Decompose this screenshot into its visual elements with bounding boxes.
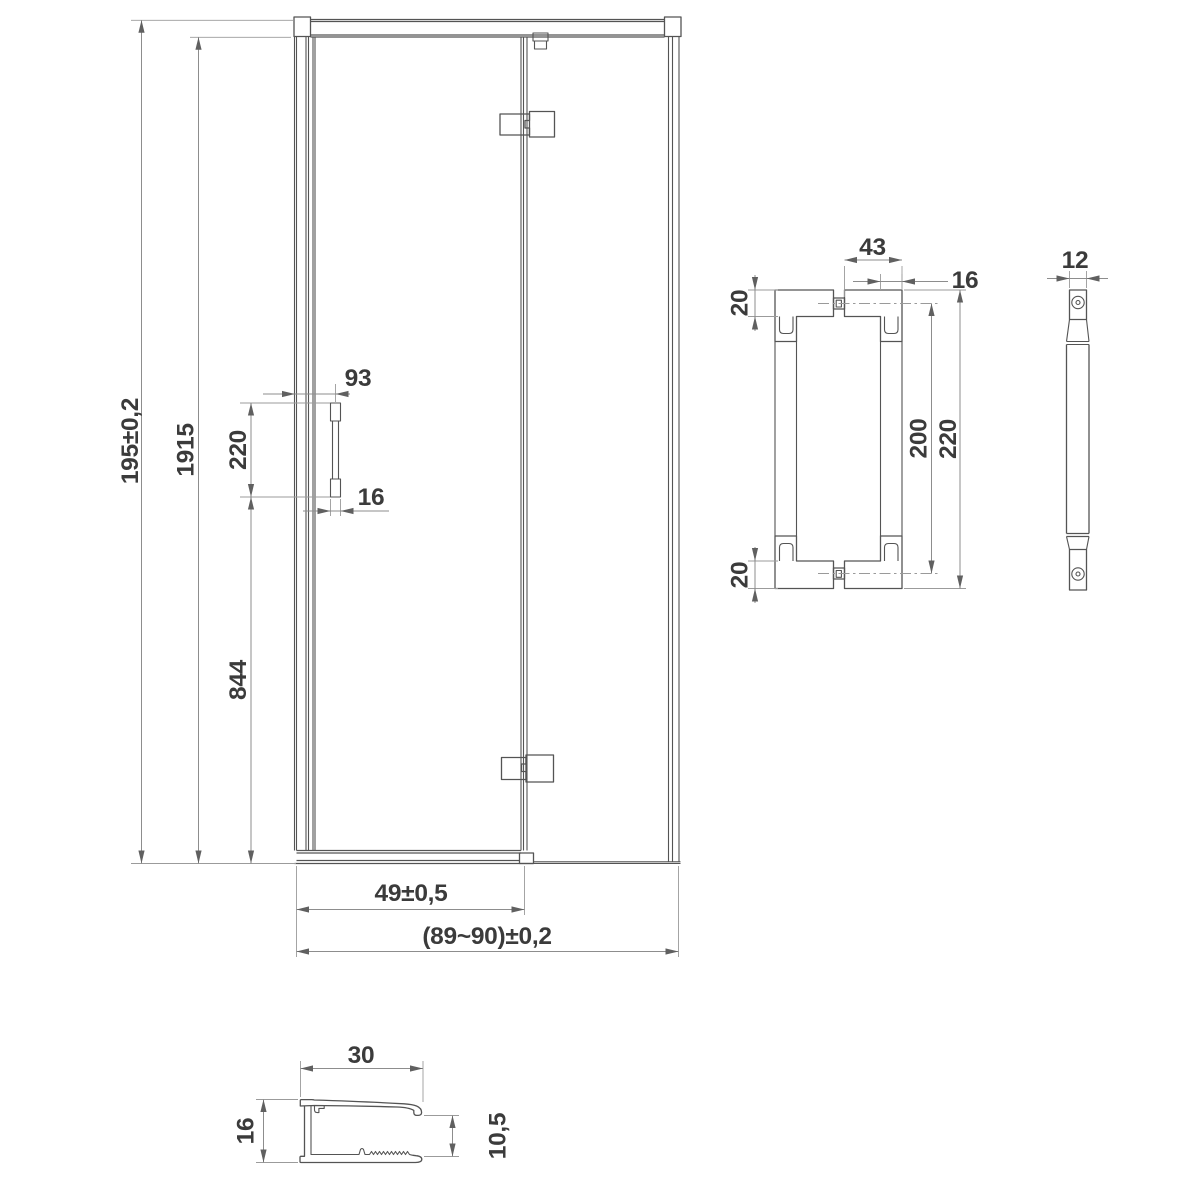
handle-slot-bottom-left: [780, 544, 794, 562]
dim-label-total-length: 220: [935, 419, 962, 459]
dim-label-holes-distance: 200: [906, 419, 933, 459]
dim-label-profile-channel: 10,5: [485, 1113, 512, 1159]
dim-profile-height: 16: [233, 1100, 299, 1163]
technical-drawing-page: 195±0,2 1915 220 844 93: [0, 0, 1200, 1200]
dim-profile-width: 30: [301, 1042, 424, 1102]
dim-block-height-top: 20: [727, 275, 779, 331]
right-panel-edge: [669, 37, 680, 862]
side-tab-bottom: [1070, 550, 1087, 591]
dim-handle-bottom: 844: [225, 497, 252, 864]
handle-bar-right: [881, 342, 903, 537]
bottom-rail-end: [520, 853, 534, 864]
dim-label-block-height-top: 20: [727, 290, 754, 317]
dim-handle-width: 16: [303, 484, 389, 516]
dim-label-profile-width: 30: [348, 1042, 375, 1069]
door-frame: [294, 17, 681, 864]
left-wall-profile: [295, 37, 316, 851]
corner-block-left: [294, 17, 311, 37]
dim-label-handle-depth: 12: [1062, 247, 1089, 274]
dim-holes-distance: 200: [906, 304, 933, 574]
dim-label-total-width: (89~90)±0,2: [422, 923, 551, 950]
dim-overall-height: 195±0,2: [117, 20, 296, 863]
door-front-view: [294, 17, 681, 864]
dim-label-door-width: 49±0,5: [375, 880, 448, 907]
handle-side-dimensions: 12: [1047, 247, 1108, 288]
side-bar: [1067, 345, 1090, 537]
screw-hole-top: [1072, 296, 1084, 308]
side-neck-top: [1067, 320, 1090, 345]
dim-block-height-bottom: 20: [727, 547, 779, 603]
dim-handle-length: 220: [225, 403, 330, 497]
profile-inner-wall-serrations: [311, 1105, 412, 1155]
corner-block-right: [665, 17, 682, 37]
dim-label-block-height-bottom: 20: [727, 562, 754, 589]
door-dimensions: 195±0,2 1915 220 844 93: [117, 20, 679, 957]
door-leaf-edge: [521, 37, 527, 851]
dim-label-glass-height: 1915: [173, 423, 200, 476]
handle-slot-bottom-right: [885, 544, 899, 562]
dim-label-handle-width: 16: [358, 484, 385, 511]
bottom-rail: [295, 851, 534, 864]
handle-slot-top-right: [885, 317, 899, 334]
dim-handle-offset: 93: [263, 365, 371, 402]
handle-slot-top-left: [780, 317, 794, 334]
top-rail: [311, 20, 665, 38]
door-handle: [331, 403, 341, 497]
dim-label-handle-bottom: 844: [225, 659, 252, 700]
bottom-sill: [534, 862, 681, 864]
side-neck-bottom: [1067, 537, 1090, 550]
profile-inner-clip: [315, 1106, 325, 1113]
dim-block-width: 43: [845, 234, 903, 297]
dim-label-block-width: 43: [859, 234, 886, 261]
handle-side-view: [1067, 290, 1090, 590]
dim-label-overall-height: 195±0,2: [117, 398, 144, 484]
screw-hole-bottom: [1072, 568, 1084, 580]
dim-label-handle-offset: 93: [345, 365, 372, 392]
dim-profile-channel: 10,5: [424, 1113, 512, 1159]
dim-handle-depth: 12: [1047, 247, 1108, 288]
handle-bar-left: [775, 342, 797, 537]
technical-drawing: 195±0,2 1915 220 844 93: [0, 0, 1200, 1200]
glass-profile-section: [300, 1100, 422, 1163]
dim-total-width: (89~90)±0,2: [297, 866, 679, 957]
dim-label-handle-length: 220: [225, 430, 252, 470]
dim-label-profile-height: 16: [233, 1118, 260, 1145]
